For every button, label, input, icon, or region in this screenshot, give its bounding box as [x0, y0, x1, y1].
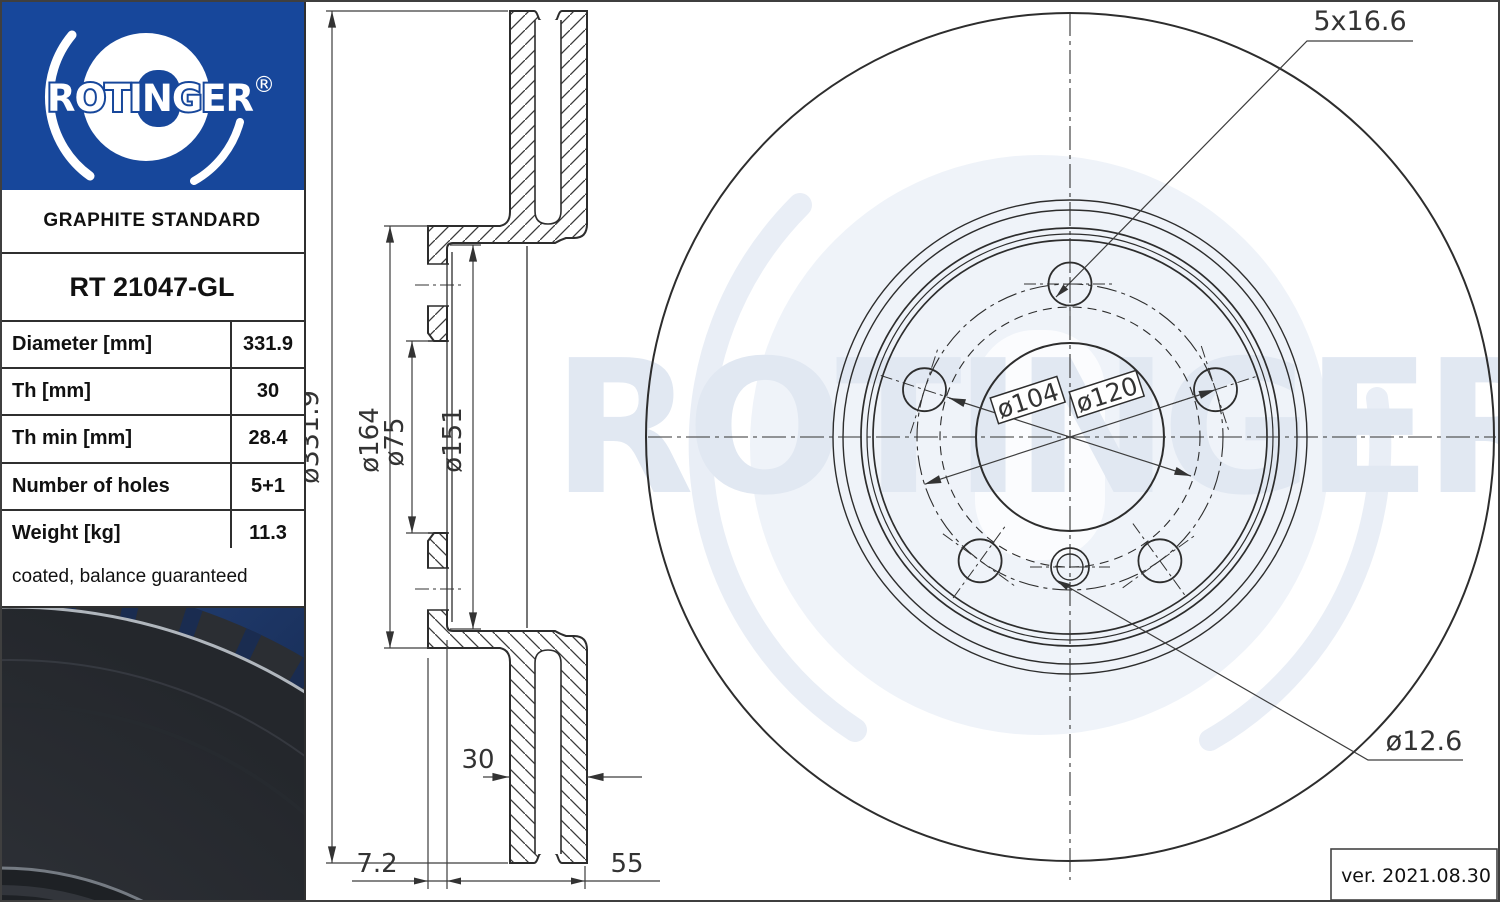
drawing-area: ROTINGER	[306, 0, 1500, 902]
dim-outer-diameter: ø331.9	[306, 390, 325, 484]
vent-slot	[535, 650, 561, 854]
spec-label: Number of holes	[0, 464, 230, 509]
watermark-text: ROTINGER	[552, 320, 1500, 536]
dim-locating-hole: ø12.6	[1386, 726, 1463, 757]
spec-row: Diameter [mm] 331.9	[0, 322, 304, 369]
dim-inner-diameter: ø151	[438, 407, 468, 473]
spec-value: 5+1	[230, 464, 304, 509]
spec-label: Diameter [mm]	[0, 322, 230, 367]
part-number: RT 21047-GL	[0, 254, 304, 322]
logo-swoosh-right	[194, 122, 240, 181]
dim-bolt-holes: 5x16.6	[1313, 6, 1406, 37]
dim-flange-thickness: 7.2	[356, 849, 397, 879]
spec-row: Th [mm] 30	[0, 369, 304, 416]
version-box: ver. 2021.08.30	[1331, 849, 1497, 900]
spec-label: Th min [mm]	[0, 416, 230, 461]
left-panel: ROTINGER ® GRAPHITE STANDARD RT 21047-GL…	[0, 0, 306, 902]
note: coated, balance guaranteed	[0, 548, 304, 608]
logo-block: ROTINGER ®	[0, 0, 304, 190]
dim-bore-diameter: ø75	[380, 418, 410, 467]
spec-label: Th [mm]	[0, 369, 230, 414]
vent-slot	[535, 20, 561, 224]
spec-row: Number of holes 5+1	[0, 464, 304, 511]
spec-row: Th min [mm] 28.4	[0, 416, 304, 463]
photo-image	[0, 608, 304, 902]
product-photo	[0, 608, 304, 902]
spec-value: 28.4	[230, 416, 304, 461]
spec-table: Diameter [mm] 331.9 Th [mm] 30 Th min [m…	[0, 322, 304, 558]
spec-value: 30	[230, 369, 304, 414]
rotinger-logo: ROTINGER ®	[0, 0, 304, 190]
logo-wordmark: ROTINGER	[47, 77, 254, 120]
section-top-half	[427, 11, 587, 341]
version-label: ver. 2021.08.30	[1341, 865, 1491, 887]
dim-thickness: 30	[461, 745, 494, 775]
spec-value: 331.9	[230, 322, 304, 367]
product-line-title: GRAPHITE STANDARD	[0, 190, 304, 254]
datasheet-page: ROTINGER ® GRAPHITE STANDARD RT 21047-GL…	[0, 0, 1500, 902]
dim-total-height: 55	[610, 849, 643, 879]
logo-registered-mark: ®	[253, 73, 275, 98]
section-bottom-half	[427, 533, 587, 863]
